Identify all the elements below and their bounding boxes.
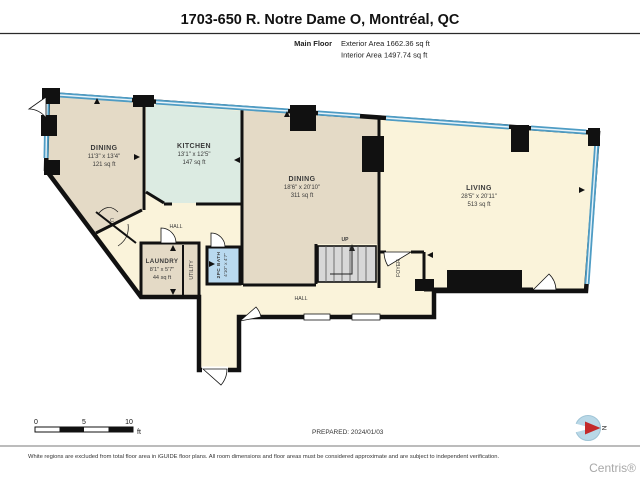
label-dining-center: DINING	[289, 176, 316, 183]
label-bath: 2PC BATH	[216, 251, 222, 278]
svg-text:4'10" x 4'7": 4'10" x 4'7"	[223, 253, 229, 277]
svg-text:513 sq ft: 513 sq ft	[467, 202, 490, 208]
label-foyer: FOYER	[396, 259, 402, 277]
label-hall-upper: HALL	[170, 224, 183, 230]
svg-text:44 sq ft: 44 sq ft	[153, 275, 172, 281]
patio-door-a	[304, 314, 330, 320]
label-kitchen: KITCHEN	[177, 143, 211, 150]
svg-text:147 sq ft: 147 sq ft	[182, 160, 205, 166]
svg-text:28'5" x 20'11": 28'5" x 20'11"	[461, 194, 497, 200]
label-living: LIVING	[466, 185, 492, 192]
stairs	[318, 244, 376, 282]
label-dining-left: DINING	[91, 145, 118, 152]
scale-unit: ft	[137, 429, 141, 436]
label-hall-lower: HALL	[295, 296, 308, 302]
label-utility: UTILITY	[189, 260, 195, 280]
exterior-area-label: Exterior Area 1662.36 sq ft	[341, 39, 431, 48]
scale-tick-10: 10	[125, 419, 133, 426]
svg-text:11'3" x 13'4": 11'3" x 13'4"	[88, 154, 120, 160]
compass-north-label: N	[600, 426, 607, 431]
page-title: 1703-650 R. Notre Dame O, Montréal, QC	[181, 12, 460, 28]
interior-area-label: Interior Area 1497.74 sq ft	[341, 51, 428, 60]
floor-label: Main Floor	[294, 39, 332, 48]
label-closet: C	[110, 218, 114, 224]
scale-tick-5: 5	[82, 419, 86, 426]
svg-text:121 sq ft: 121 sq ft	[92, 162, 115, 168]
svg-text:18'6" x 20'10": 18'6" x 20'10"	[284, 185, 320, 191]
door-top-left	[29, 97, 46, 118]
floor-plan-canvas: 1703-650 R. Notre Dame O, Montréal, QC M…	[0, 0, 640, 480]
disclaimer-text: White regions are excluded from total fl…	[28, 454, 499, 460]
brand-logo: Centris®	[589, 461, 636, 475]
label-up: UP	[342, 237, 350, 243]
fireplace-block	[447, 270, 522, 289]
floor-plan-page: 1703-650 R. Notre Dame O, Montréal, QC M…	[0, 0, 640, 480]
prepared-date: PREPARED: 2024/01/03	[312, 429, 384, 436]
patio-door-b	[352, 314, 380, 320]
svg-text:13'1" x 12'5": 13'1" x 12'5"	[178, 152, 211, 158]
svg-text:8'1" x 5'7": 8'1" x 5'7"	[150, 267, 174, 273]
scale-tick-0: 0	[34, 419, 38, 426]
svg-text:311 sq ft: 311 sq ft	[291, 193, 314, 199]
compass-icon: N	[575, 416, 607, 441]
label-laundry: LAUNDRY	[146, 258, 179, 265]
scale-bar: 0 5 10 ft	[34, 419, 141, 436]
door-entrance	[203, 369, 227, 385]
